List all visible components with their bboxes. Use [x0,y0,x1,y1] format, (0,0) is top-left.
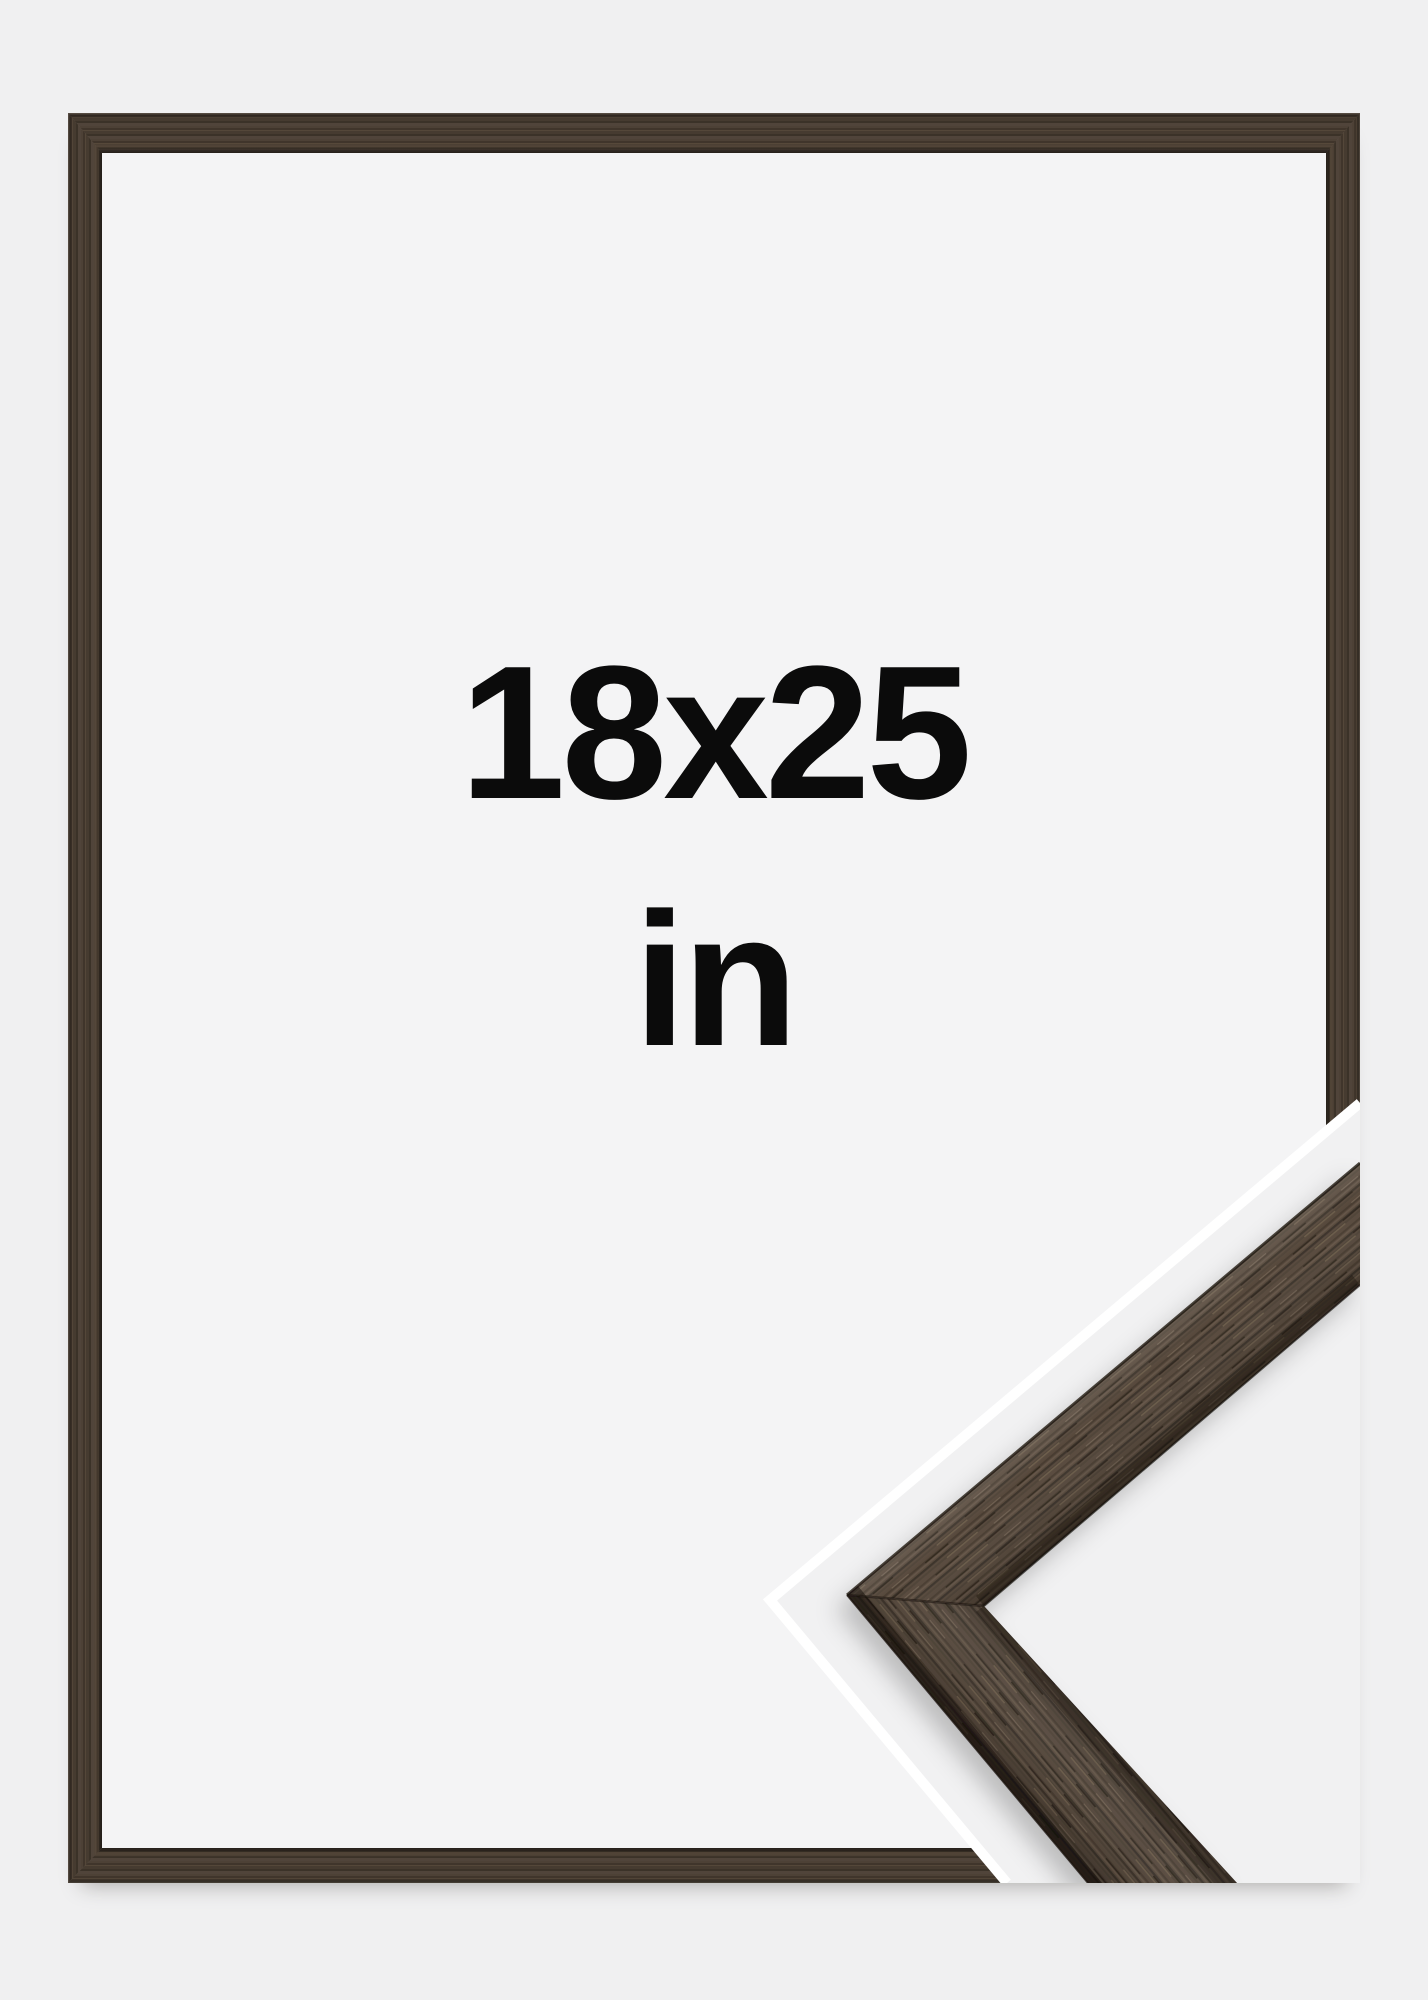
product-photo: 18x25 in [68,113,1360,1883]
corner-detail-overlay [68,113,1360,1883]
